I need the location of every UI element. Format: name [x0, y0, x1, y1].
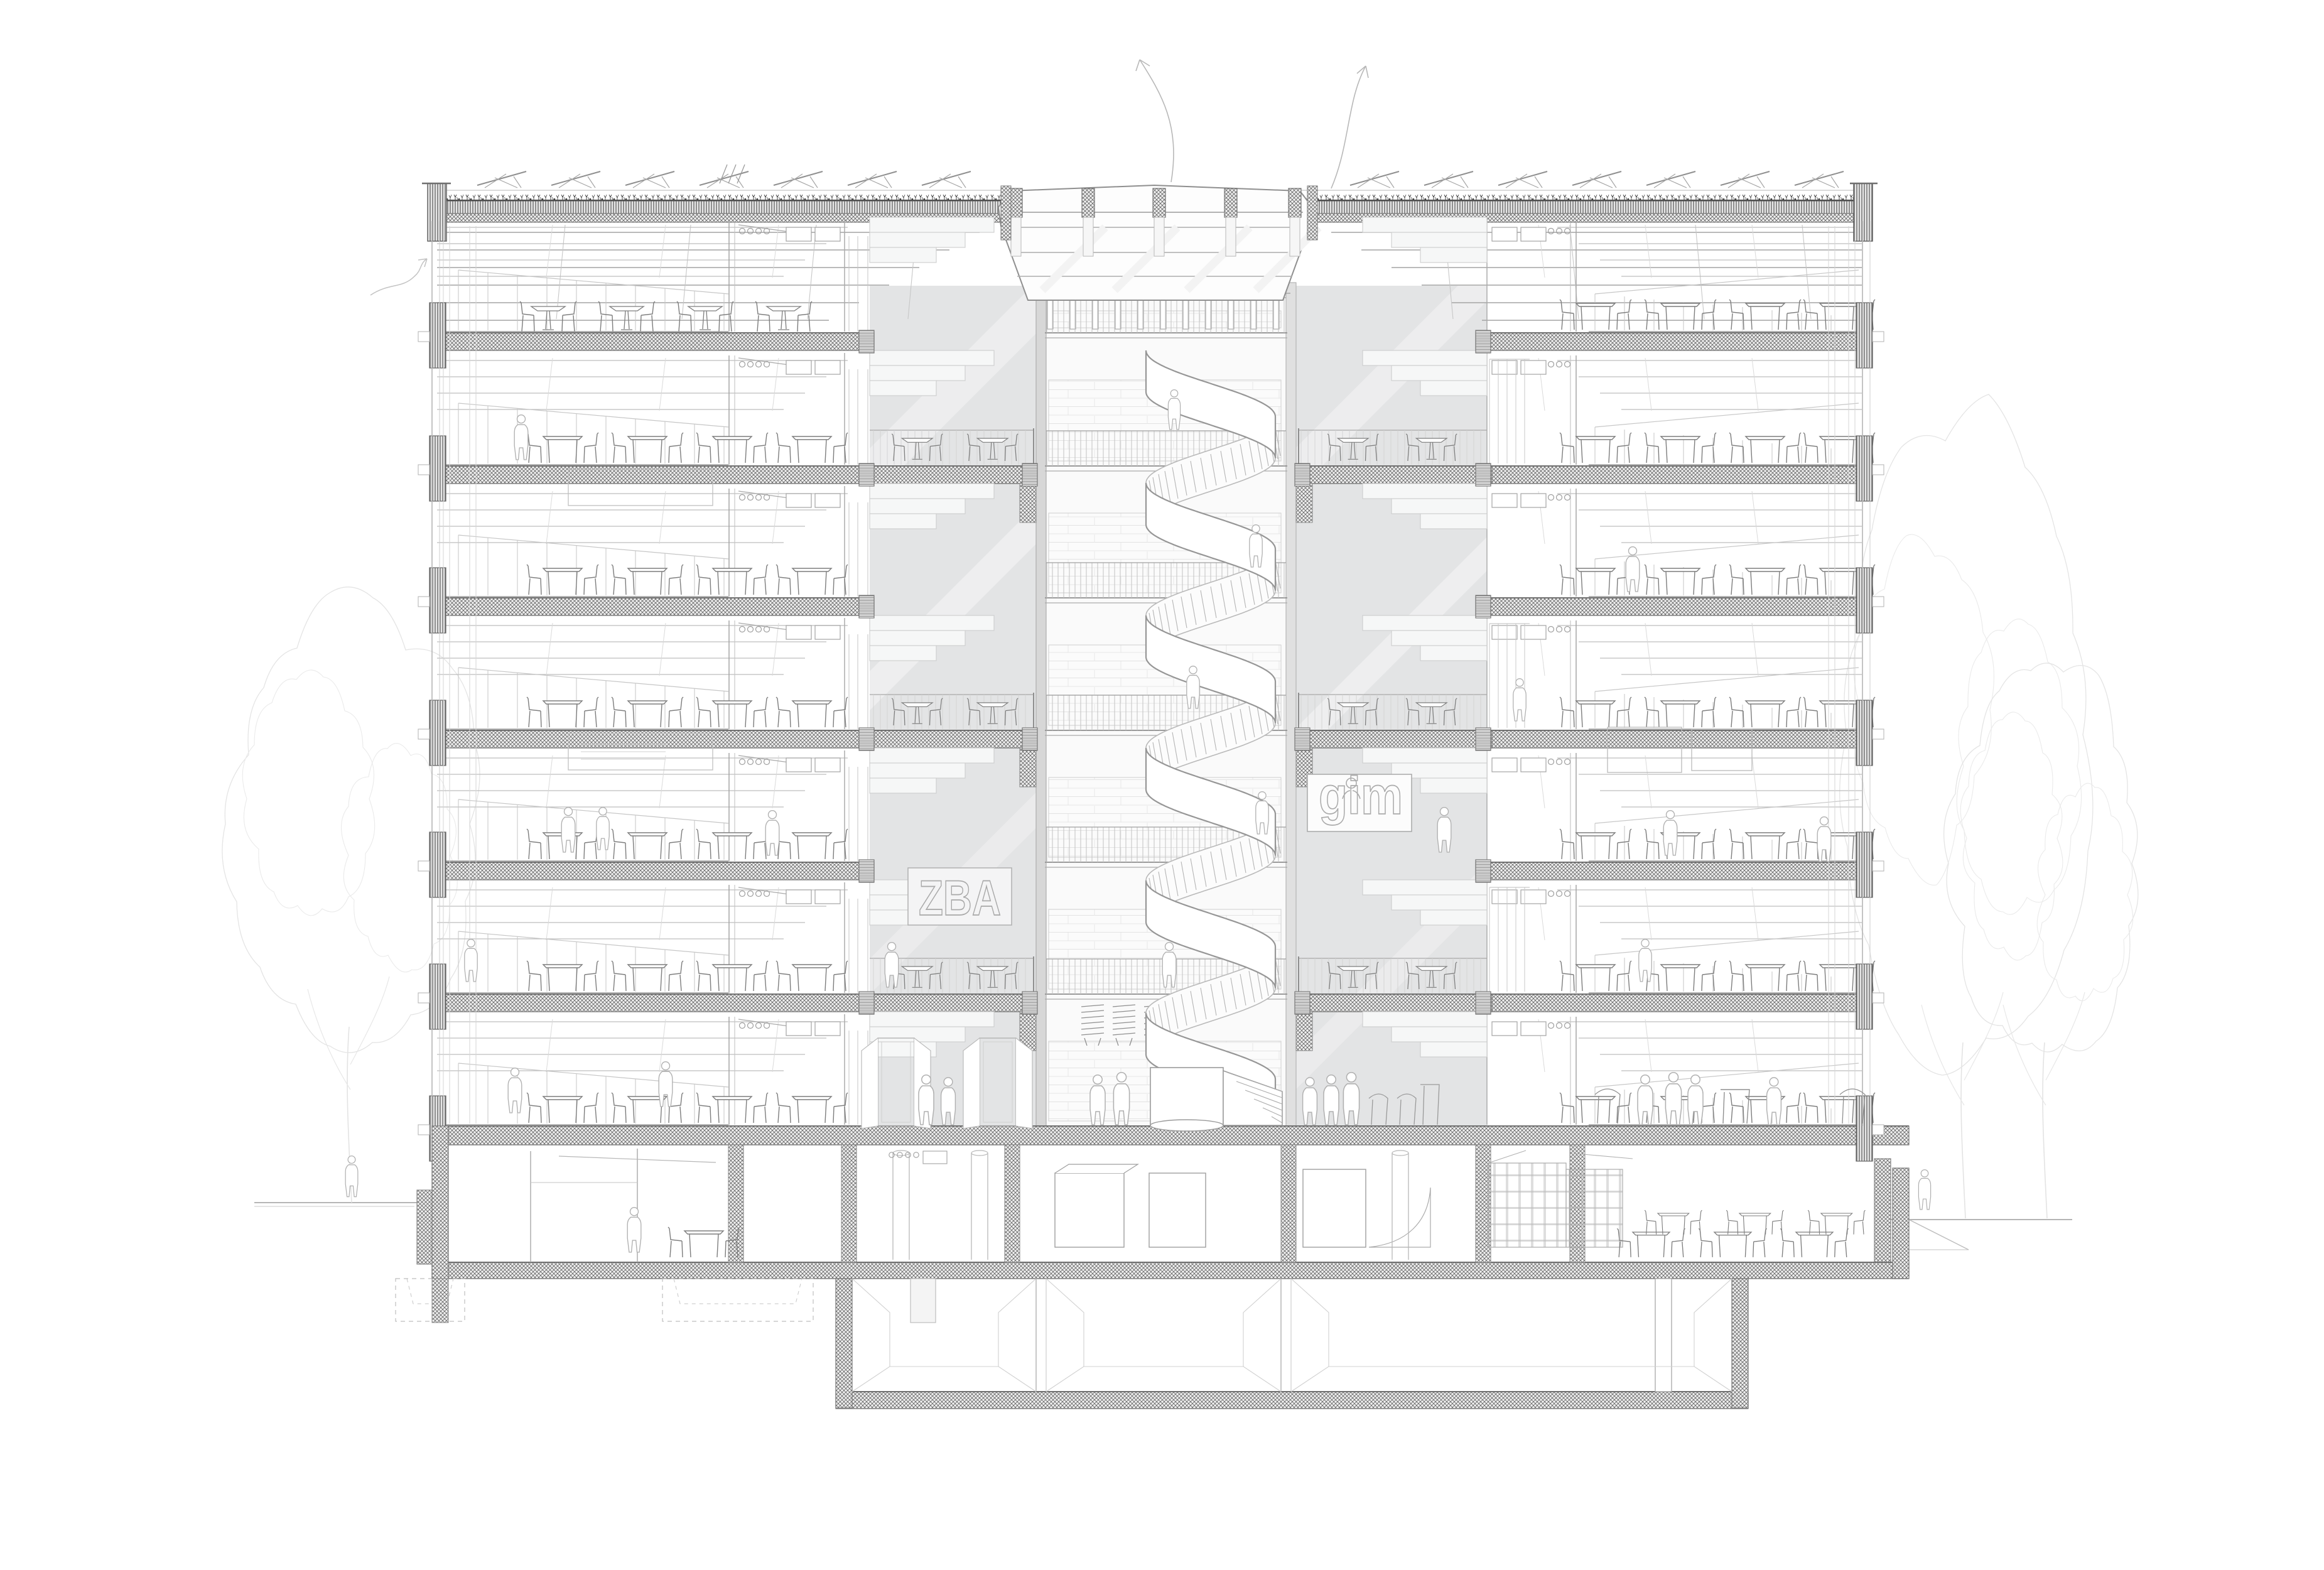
- svg-text:ZBA: ZBA: [919, 870, 1001, 926]
- svg-text:gim: gim: [1319, 766, 1403, 825]
